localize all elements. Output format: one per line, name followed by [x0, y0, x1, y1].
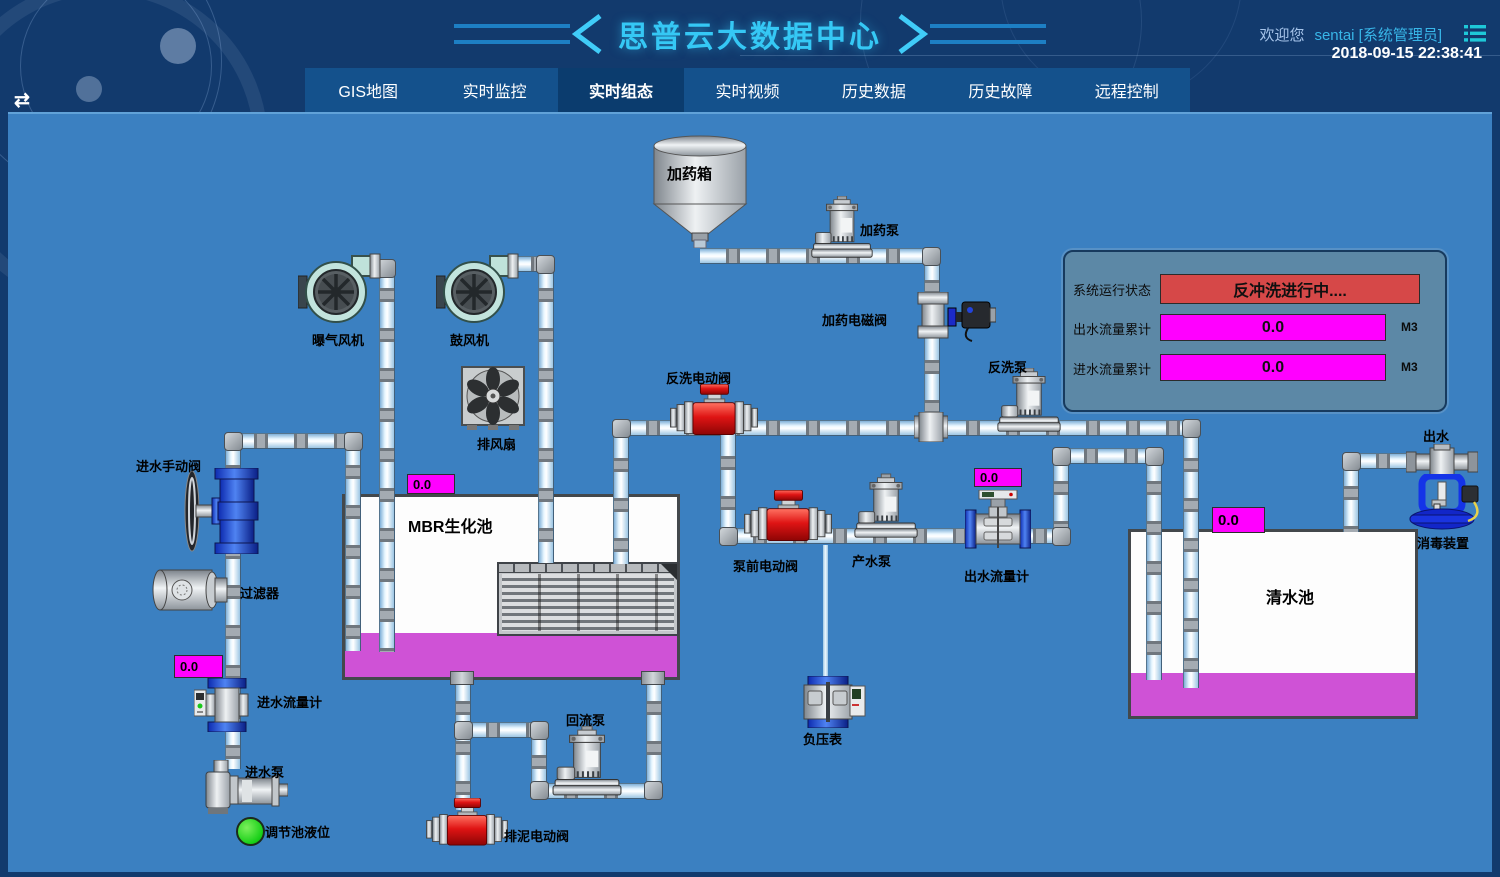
label-prepump-valve: 泵前电动阀: [733, 556, 798, 575]
inlet-flowmeter: [194, 678, 260, 732]
status-label-outlet-total: 出水流量累计: [1073, 319, 1151, 338]
label-blower: 鼓风机: [450, 330, 489, 349]
membrane-module: [497, 562, 679, 636]
exhaust-fan[interactable]: [461, 366, 525, 432]
reflux-pump[interactable]: [551, 726, 623, 798]
pipe-elbow: [344, 432, 363, 451]
backwash-electric-valve[interactable]: [668, 384, 760, 442]
scada-screen: 思普云大数据中心 欢迎您sentai [系统管理员] 2018-09-15 22…: [0, 0, 1500, 877]
pipe-product-left-riser: [720, 430, 736, 535]
product-water-pump[interactable]: [853, 472, 919, 542]
pipe-elbow: [922, 247, 941, 266]
welcome-line: 欢迎您sentai [系统管理员]: [1259, 24, 1442, 45]
membrane-corner: [661, 564, 677, 580]
label-backwash-pump: 反洗泵: [988, 357, 1027, 376]
pipe-product-tank-drop: [1146, 455, 1162, 680]
label-exhaust-fan: 排风扇: [477, 434, 516, 453]
label-sludge-valve: 排泥电动阀: [504, 826, 569, 845]
title-decor-left: [454, 12, 604, 56]
dosing-solenoid-valve[interactable]: [908, 292, 996, 348]
label-dosing-tank: 加药箱: [667, 163, 712, 184]
label-reflux-pump: 回流泵: [566, 710, 605, 729]
blower[interactable]: [436, 252, 520, 324]
pipe-elbow: [1182, 419, 1201, 438]
decor-dot: [76, 76, 102, 102]
status-value-outlet-total: 0.0: [1160, 314, 1386, 341]
label-inlet-manual-valve: 进水手动阀: [136, 456, 201, 475]
clean-water-tank-liquid: [1131, 673, 1415, 716]
pipe-blower-drop: [538, 262, 554, 563]
pipe-elbow: [719, 527, 738, 546]
value-mbr-level: 0.0: [407, 474, 455, 494]
pipe-inlet-top: [228, 433, 354, 449]
clean-water-tank: [1128, 529, 1418, 719]
title-decor-right: [896, 12, 1046, 56]
pipe-inlet-tank-drop: [345, 439, 361, 651]
datetime: 2018-09-15 22:38:41: [1332, 45, 1482, 63]
menu-list-icon[interactable]: [1464, 25, 1486, 42]
prepump-electric-valve[interactable]: [742, 490, 834, 548]
tank-outlet-stub: [450, 671, 474, 685]
backwash-pump[interactable]: [996, 368, 1062, 434]
pipe-elbow: [644, 781, 663, 800]
label-vacuum-gauge: 负压表: [803, 729, 842, 748]
status-value-system: 反冲洗进行中....: [1160, 274, 1420, 304]
nav-bar: GIS地图 实时监控 实时组态 实时视频 历史数据 历史故障 远程控制: [305, 68, 1190, 112]
dosing-tank-hopper: [650, 134, 750, 248]
pipe-backwash-tank-drop: [1183, 432, 1199, 688]
pipe-reflux-riser: [646, 675, 662, 790]
pipe-elbow: [224, 432, 243, 451]
pipe-elbow: [530, 721, 549, 740]
tab-realtime-video[interactable]: 实时视频: [684, 68, 810, 112]
tab-realtime-mimic[interactable]: 实时组态: [558, 68, 684, 112]
label-dosing-valve: 加药电磁阀: [822, 310, 887, 329]
pipe-tee: [454, 721, 473, 740]
label-inlet-flowmeter: 进水流量计: [257, 692, 322, 711]
value-inlet-flow: 0.0: [174, 655, 223, 678]
label-regulating-level: 调节池液位: [265, 822, 330, 841]
pipe-sludge-drop: [455, 675, 471, 810]
membrane-ticks: [499, 564, 677, 573]
label-backwash-valve: 反洗电动阀: [666, 368, 731, 387]
status-value-inlet-total: 0.0: [1160, 354, 1386, 381]
label-disinfection: 消毒装置: [1417, 533, 1469, 552]
label-mbr-tank: MBR生化池: [408, 513, 492, 537]
header-title-block: 思普云大数据中心: [430, 10, 1070, 58]
label-outlet-flowmeter: 出水流量计: [964, 566, 1029, 585]
pipe-junction-tee: [914, 412, 948, 442]
pipe-product-right-riser: [1053, 455, 1069, 535]
status-panel: 系统运行状态 反冲洗进行中.... 出水流量累计 0.0 M3 进水流量累计 0…: [1063, 250, 1447, 412]
label-product-pump: 产水泵: [852, 551, 891, 570]
label-dosing-pump: 加药泵: [860, 220, 899, 239]
welcome-text: 欢迎您: [1259, 27, 1304, 44]
pipe-gauge-thin: [823, 545, 828, 683]
pipe-elbow: [612, 419, 631, 438]
decor-dot: [160, 28, 196, 64]
sludge-electric-valve[interactable]: [424, 798, 510, 852]
regulating-tank-level-indicator: [236, 817, 265, 846]
collapse-arrows-icon[interactable]: ⇄: [14, 89, 30, 112]
label-filter: 过滤器: [240, 583, 279, 602]
label-clean-tank: 清水池: [1266, 584, 1314, 608]
label-aeration-blower: 曝气风机: [312, 330, 364, 349]
status-unit-outlet: M3: [1401, 320, 1418, 334]
pipe-elbow: [1145, 447, 1164, 466]
inlet-manual-valve[interactable]: [182, 468, 260, 554]
tab-history-data[interactable]: 历史数据: [811, 68, 937, 112]
tab-gis-map[interactable]: GIS地图: [305, 68, 431, 112]
tab-history-fault[interactable]: 历史故障: [937, 68, 1063, 112]
status-unit-inlet: M3: [1401, 360, 1418, 374]
status-label-system: 系统运行状态: [1073, 280, 1151, 299]
value-outlet-flow: 0.0: [974, 468, 1022, 487]
status-label-inlet-total: 进水流量累计: [1073, 359, 1151, 378]
pipe-product-upper: [1058, 448, 1158, 464]
pipe-elbow: [536, 255, 555, 274]
membrane-rows: [502, 574, 674, 631]
pipe-elbow: [1052, 527, 1071, 546]
pipe-elbow: [1342, 452, 1361, 471]
pipe-membrane-riser: [613, 432, 629, 564]
tank-outlet-stub: [641, 671, 665, 685]
filter: [152, 568, 228, 612]
disinfection-device: [1404, 474, 1482, 532]
pipe-elbow: [530, 781, 549, 800]
value-clean-level: 0.0: [1212, 507, 1265, 533]
vacuum-gauge: [800, 676, 866, 728]
username: sentai [系统管理员]: [1314, 27, 1442, 44]
outlet-flowmeter: [965, 490, 1031, 556]
tab-remote-control[interactable]: 远程控制: [1064, 68, 1190, 112]
label-outlet: 出水: [1423, 426, 1449, 445]
tab-realtime-monitor[interactable]: 实时监控: [431, 68, 557, 112]
label-inlet-pump: 进水泵: [245, 762, 284, 781]
page-title: 思普云大数据中心: [618, 12, 882, 56]
pipe-elbow: [1052, 447, 1071, 466]
aeration-blower[interactable]: [298, 252, 382, 324]
